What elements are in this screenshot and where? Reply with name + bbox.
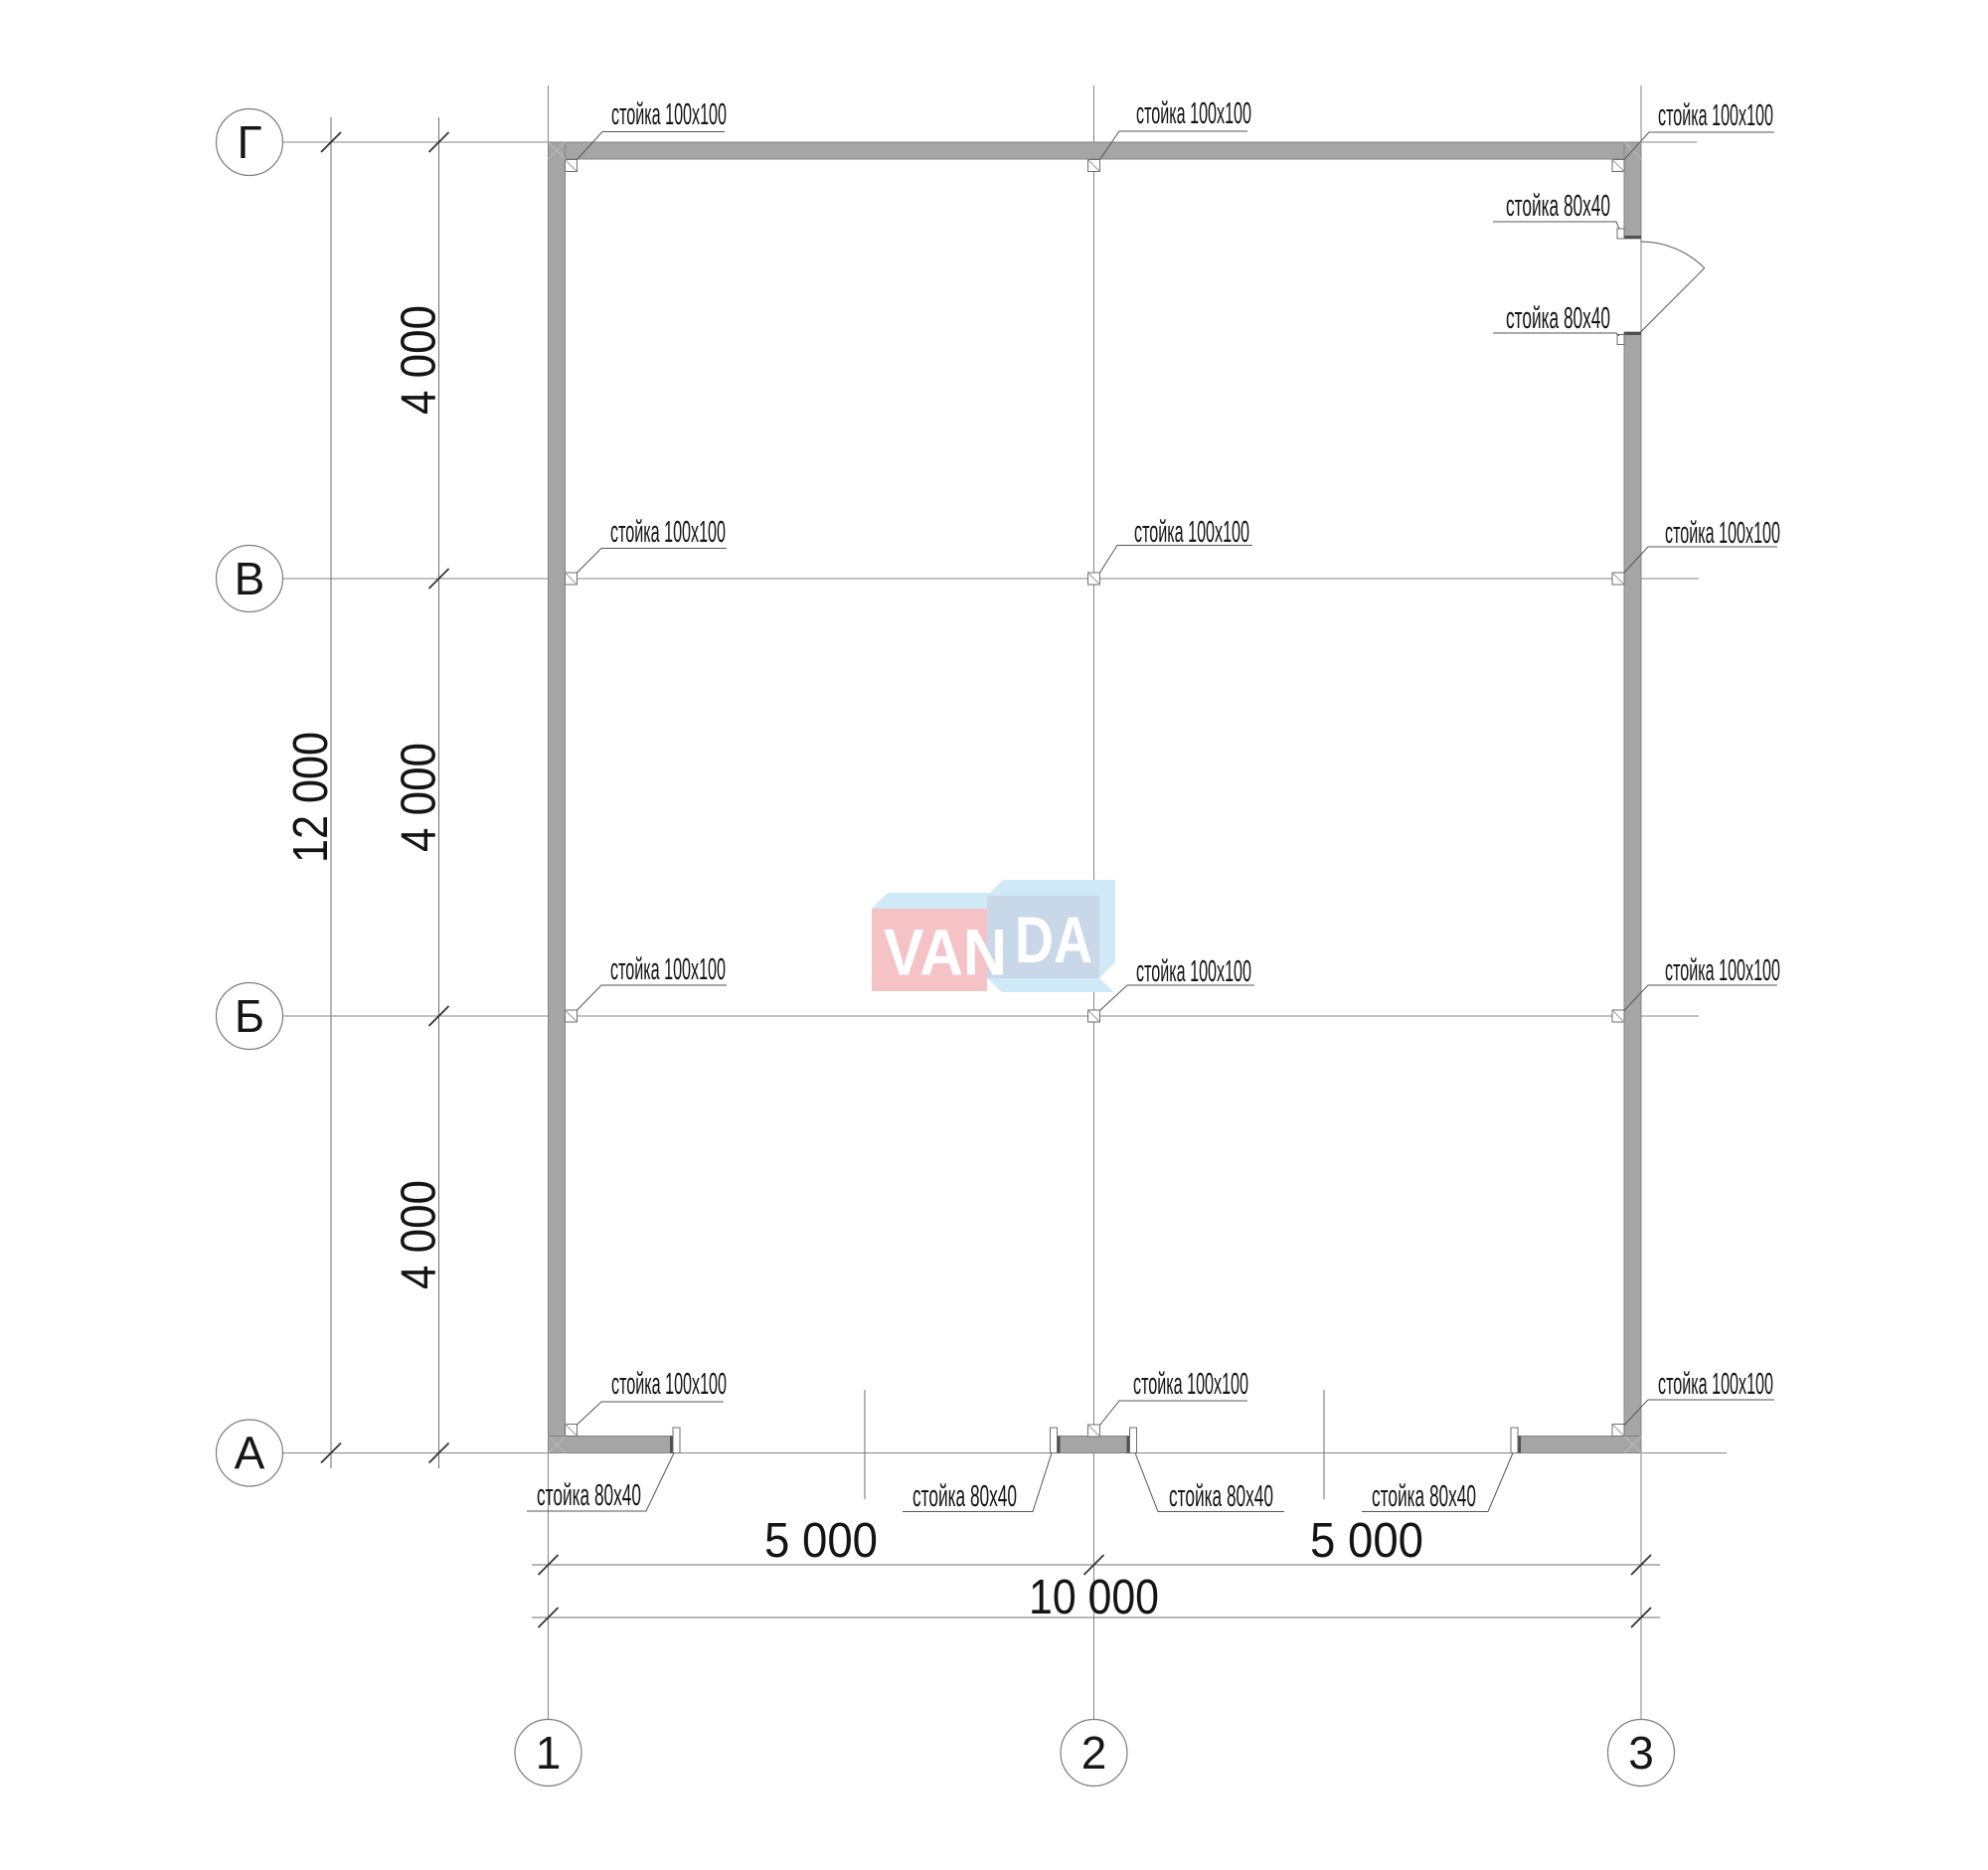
svg-text:А: А (235, 1428, 265, 1479)
svg-text:стойка 80х40: стойка 80х40 (912, 1478, 1017, 1513)
svg-text:стойка 80х40: стойка 80х40 (1169, 1478, 1273, 1513)
svg-text:DA: DA (1015, 903, 1092, 976)
svg-text:5 000: 5 000 (764, 1514, 878, 1568)
svg-text:3: 3 (1628, 1727, 1654, 1779)
svg-text:10 000: 10 000 (1029, 1571, 1159, 1624)
svg-text:VAN: VAN (884, 916, 1007, 989)
svg-text:12 000: 12 000 (284, 732, 338, 863)
svg-text:стойка 100х100: стойка 100х100 (1133, 1366, 1248, 1401)
svg-text:стойка 100х100: стойка 100х100 (1136, 95, 1251, 130)
svg-text:стойка 100х100: стойка 100х100 (1665, 952, 1780, 987)
svg-text:стойка 100х100: стойка 100х100 (1665, 515, 1780, 550)
svg-text:В: В (235, 553, 265, 604)
svg-text:стойка 100х100: стойка 100х100 (611, 1366, 727, 1401)
svg-text:4 000: 4 000 (393, 1180, 446, 1289)
svg-text:1: 1 (536, 1727, 562, 1779)
svg-text:Б: Б (235, 990, 264, 1042)
svg-text:стойка 100х100: стойка 100х100 (1134, 514, 1249, 549)
svg-text:5 000: 5 000 (1310, 1514, 1423, 1568)
svg-text:стойка 100х100: стойка 100х100 (1658, 97, 1773, 132)
svg-text:стойка 80х40: стойка 80х40 (537, 1477, 641, 1512)
svg-text:стойка 80х40: стойка 80х40 (1506, 188, 1610, 223)
svg-text:стойка 100х100: стойка 100х100 (610, 951, 726, 986)
svg-text:стойка 100х100: стойка 100х100 (1658, 1366, 1773, 1401)
svg-text:стойка 100х100: стойка 100х100 (611, 96, 727, 131)
svg-text:Г: Г (238, 116, 262, 168)
svg-text:стойка 80х40: стойка 80х40 (1372, 1478, 1476, 1513)
svg-text:2: 2 (1081, 1727, 1107, 1779)
svg-text:4 000: 4 000 (393, 743, 446, 852)
svg-text:стойка 80х40: стойка 80х40 (1506, 300, 1610, 335)
svg-text:стойка 100х100: стойка 100х100 (610, 514, 726, 549)
svg-text:4 000: 4 000 (393, 305, 446, 415)
svg-text:стойка 100х100: стойка 100х100 (1136, 953, 1251, 988)
